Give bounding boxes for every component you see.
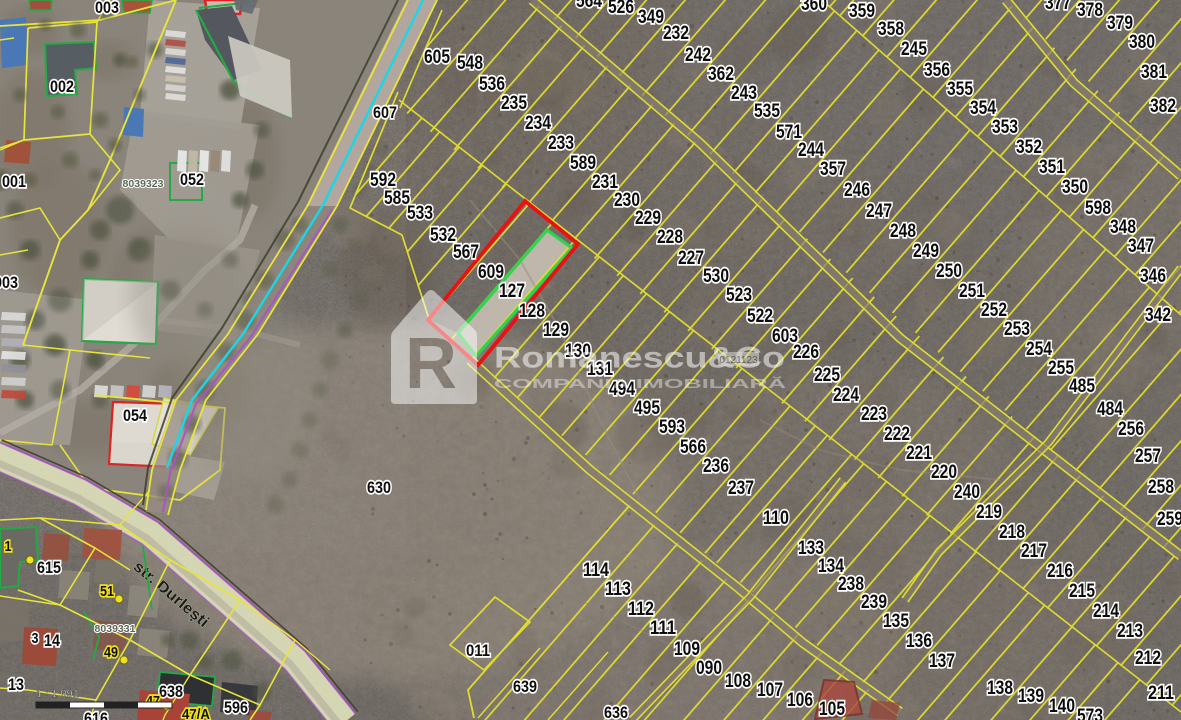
svg-text:638: 638 [159, 682, 183, 701]
svg-text:217: 217 [1021, 541, 1047, 562]
svg-text:239: 239 [861, 592, 887, 613]
svg-text:137: 137 [929, 651, 955, 672]
svg-text:003: 003 [95, 0, 119, 17]
svg-text:381: 381 [1141, 62, 1167, 83]
svg-text:596: 596 [224, 698, 248, 717]
svg-text:8039331: 8039331 [95, 623, 136, 635]
svg-text:213: 213 [1117, 621, 1143, 642]
svg-text:222: 222 [884, 424, 910, 445]
svg-text:349: 349 [638, 7, 664, 28]
svg-text:105: 105 [819, 699, 845, 720]
svg-text:598: 598 [1085, 198, 1111, 219]
svg-text:229: 229 [635, 208, 661, 229]
svg-text:140: 140 [1049, 696, 1075, 717]
svg-text:548: 548 [457, 53, 483, 74]
svg-text:353: 353 [992, 117, 1018, 138]
svg-text:1: 1 [5, 538, 12, 555]
svg-text:564: 564 [576, 0, 602, 12]
svg-text:607: 607 [373, 103, 397, 122]
svg-text:223: 223 [861, 404, 887, 425]
svg-text:636: 636 [604, 703, 628, 720]
svg-text:234: 234 [525, 113, 551, 134]
svg-text:639: 639 [513, 677, 537, 696]
svg-text:011: 011 [466, 641, 490, 660]
svg-text:110: 110 [763, 508, 789, 529]
svg-text:484: 484 [1097, 399, 1123, 420]
svg-text:355: 355 [947, 79, 973, 100]
svg-text:360: 360 [801, 0, 827, 15]
svg-text:630: 630 [367, 478, 391, 497]
svg-text:358: 358 [878, 19, 904, 40]
svg-text:244: 244 [798, 140, 824, 161]
svg-text:224: 224 [833, 385, 859, 406]
svg-text:216: 216 [1047, 561, 1073, 582]
svg-text:215: 215 [1069, 581, 1095, 602]
svg-text:47/A: 47/A [182, 706, 210, 720]
svg-text:136: 136 [906, 631, 932, 652]
svg-text:108: 108 [725, 671, 751, 692]
svg-text:357: 357 [820, 159, 846, 180]
svg-text:14: 14 [44, 631, 60, 650]
svg-text:111: 111 [650, 618, 676, 639]
svg-text:536: 536 [479, 74, 505, 95]
svg-text:1 : 1 091: 1 : 1 091 [36, 688, 79, 700]
svg-text:240: 240 [954, 482, 980, 503]
svg-text:054: 054 [123, 406, 147, 425]
svg-text:573: 573 [1077, 706, 1103, 720]
svg-text:566: 566 [680, 437, 706, 458]
svg-text:001: 001 [2, 172, 26, 191]
svg-text:589: 589 [570, 153, 596, 174]
svg-text:257: 257 [1135, 446, 1161, 467]
svg-text:109: 109 [674, 639, 700, 660]
svg-text:252: 252 [981, 300, 1007, 321]
svg-text:236: 236 [703, 456, 729, 477]
svg-text:251: 251 [959, 281, 985, 302]
svg-text:052: 052 [180, 170, 204, 189]
svg-text:535: 535 [754, 101, 780, 122]
svg-text:112: 112 [628, 599, 654, 620]
svg-text:379: 379 [1107, 13, 1133, 34]
svg-text:350: 350 [1062, 177, 1088, 198]
svg-text:226: 226 [793, 342, 819, 363]
svg-text:356: 356 [924, 60, 950, 81]
svg-text:219: 219 [976, 502, 1002, 523]
svg-text:347: 347 [1128, 236, 1154, 257]
svg-text:228: 228 [657, 227, 683, 248]
svg-text:378: 378 [1077, 0, 1103, 21]
svg-text:253: 253 [1004, 319, 1030, 340]
svg-text:246: 246 [844, 180, 870, 201]
svg-text:212: 212 [1135, 648, 1161, 669]
svg-text:354: 354 [970, 98, 996, 119]
svg-text:530: 530 [703, 266, 729, 287]
svg-text:003: 003 [0, 273, 18, 292]
svg-text:211: 211 [1148, 683, 1174, 704]
svg-text:090: 090 [696, 658, 722, 679]
svg-text:348: 348 [1110, 217, 1136, 238]
svg-text:220: 220 [931, 462, 957, 483]
svg-text:523: 523 [726, 285, 752, 306]
svg-text:593: 593 [659, 417, 685, 438]
svg-text:609: 609 [478, 262, 504, 283]
svg-text:533: 533 [407, 203, 433, 224]
svg-text:254: 254 [1026, 339, 1052, 360]
svg-text:49: 49 [104, 644, 118, 661]
svg-text:616: 616 [84, 709, 108, 720]
svg-text:605: 605 [424, 47, 450, 68]
svg-text:235: 235 [501, 93, 527, 114]
svg-text:232: 232 [663, 23, 689, 44]
svg-text:233: 233 [548, 133, 574, 154]
svg-text:8039323: 8039323 [123, 178, 164, 190]
svg-text:245: 245 [901, 39, 927, 60]
svg-text:3: 3 [32, 630, 39, 647]
svg-text:128: 128 [519, 301, 545, 322]
svg-text:218: 218 [999, 522, 1025, 543]
svg-text:225: 225 [814, 365, 840, 386]
svg-text:248: 248 [890, 221, 916, 242]
svg-text:351: 351 [1039, 157, 1065, 178]
svg-text:247: 247 [866, 201, 892, 222]
svg-text:COMPANIA IMOBILIARĂ: COMPANIA IMOBILIARĂ [494, 376, 787, 391]
svg-text:382: 382 [1150, 96, 1176, 117]
svg-text:380: 380 [1129, 32, 1155, 53]
svg-text:485: 485 [1069, 376, 1095, 397]
svg-text:135: 135 [883, 611, 909, 632]
svg-text:352: 352 [1016, 137, 1042, 158]
svg-text:237: 237 [728, 478, 754, 499]
svg-text:51: 51 [100, 583, 114, 600]
svg-text:359: 359 [849, 1, 875, 22]
svg-text:106: 106 [787, 690, 813, 711]
svg-text:249: 249 [913, 241, 939, 262]
svg-text:522: 522 [747, 306, 773, 327]
svg-text:258: 258 [1148, 477, 1174, 498]
svg-text:377: 377 [1045, 0, 1071, 14]
svg-text:113: 113 [605, 579, 631, 600]
svg-text:139: 139 [1018, 686, 1044, 707]
svg-text:362: 362 [708, 64, 734, 85]
svg-text:242: 242 [685, 45, 711, 66]
svg-text:221: 221 [906, 443, 932, 464]
svg-text:227: 227 [678, 248, 704, 269]
svg-text:346: 346 [1140, 266, 1166, 287]
svg-text:214: 214 [1093, 601, 1119, 622]
svg-text:127: 127 [499, 281, 525, 302]
svg-text:259: 259 [1157, 509, 1181, 530]
svg-text:615: 615 [37, 558, 61, 577]
svg-text:567: 567 [453, 242, 479, 263]
svg-text:138: 138 [987, 678, 1013, 699]
svg-text:114: 114 [583, 560, 609, 581]
svg-text:13: 13 [8, 675, 24, 694]
svg-text:256: 256 [1118, 419, 1144, 440]
svg-text:342: 342 [1145, 305, 1171, 326]
svg-text:526: 526 [608, 0, 634, 18]
svg-text:107: 107 [757, 680, 783, 701]
svg-text:129: 129 [543, 320, 569, 341]
svg-text:0121123: 0121123 [719, 355, 758, 366]
svg-text:495: 495 [634, 398, 660, 419]
svg-text:002: 002 [50, 77, 74, 96]
svg-text:250: 250 [936, 261, 962, 282]
